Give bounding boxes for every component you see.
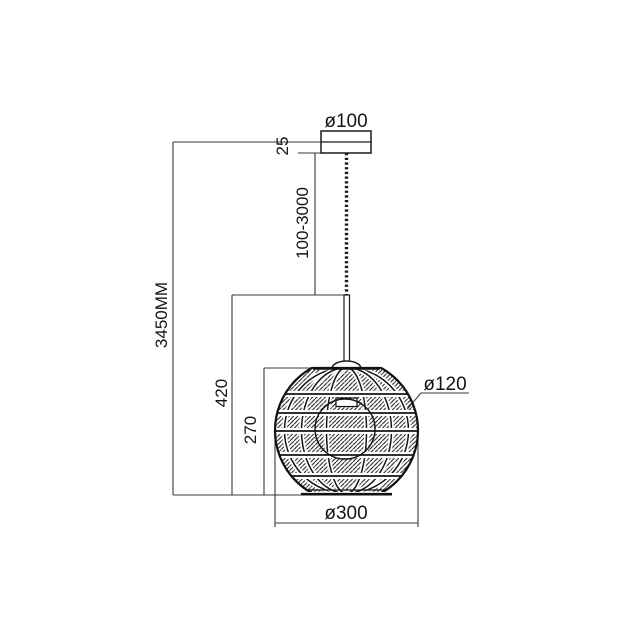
shade-diameter-label: ø300	[324, 503, 367, 524]
shade-clip-outer	[272, 359, 421, 502]
pendant-lamp-technical-drawing: ø100 25 100-3000 3450MM 420 270 ø120 ø30…	[0, 0, 630, 630]
lower-section-height-label: 420	[212, 379, 231, 407]
globe-shade	[272, 359, 421, 502]
suspension-length-label: 100-3000	[293, 187, 312, 259]
canopy-diameter-label: ø100	[324, 111, 367, 132]
total-height-label: 3450MM	[152, 282, 171, 348]
shade-height-label: 270	[241, 416, 260, 444]
drawing-background	[0, 0, 630, 630]
stem-rod	[344, 295, 350, 365]
canopy-height-label: 25	[273, 137, 292, 156]
top-opening-diameter-label: ø120	[423, 374, 466, 395]
